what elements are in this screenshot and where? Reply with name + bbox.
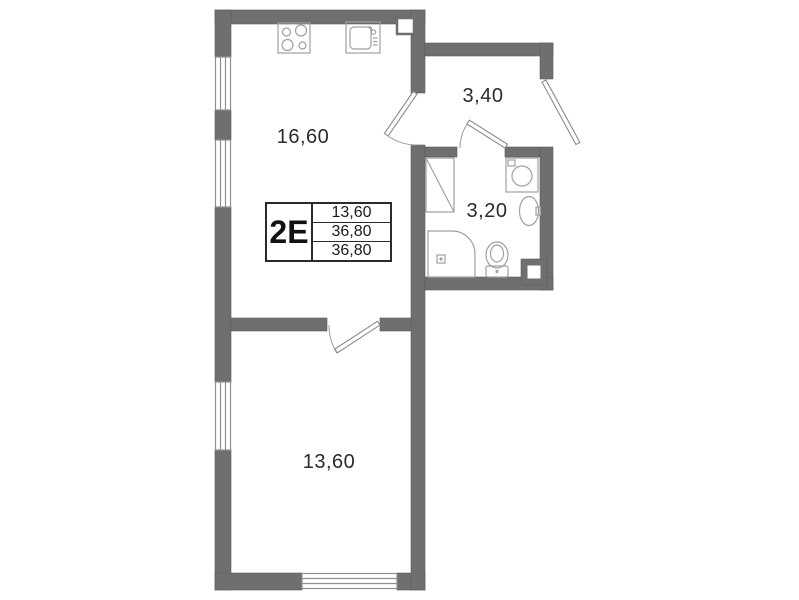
wall-divider-right — [380, 318, 411, 331]
bathroom-door-leaf — [467, 120, 507, 148]
floor-plan: 16,60 3,40 3,20 13,60 2E 13,60 36,80 36,… — [0, 0, 799, 600]
wall-bathroom-top-left — [425, 147, 457, 157]
wall-niche — [397, 18, 414, 34]
toilet-icon — [486, 242, 508, 277]
vent-shaft-icon — [521, 259, 547, 285]
unit-area-row-3: 36,80 — [313, 241, 390, 260]
window-bedroom-bottom — [302, 574, 397, 589]
wall-left-seg2 — [215, 110, 231, 140]
kitchen-door-swing-arc — [388, 136, 417, 145]
wall-left-seg3 — [215, 207, 231, 382]
unit-info-table: 2E 13,60 36,80 36,80 — [265, 202, 392, 262]
wall-hallway-right — [540, 43, 553, 79]
window-bedroom-left — [216, 382, 231, 450]
unit-info-rows: 13,60 36,80 36,80 — [313, 204, 390, 260]
water-heater-icon — [426, 158, 454, 212]
wall-divider-left — [231, 318, 327, 331]
bedroom-area-label: 13,60 — [303, 451, 356, 474]
bedroom-door-leaf — [335, 321, 380, 353]
floor-plan-drawing — [0, 0, 799, 600]
unit-area-row-2: 36,80 — [313, 222, 390, 241]
kitchen-living-area-label: 16,60 — [277, 126, 330, 149]
wall-right-main — [411, 145, 425, 590]
corner-shower-icon — [428, 231, 475, 277]
wall-bottom-seg1 — [215, 573, 302, 590]
hallway-area-label: 3,40 — [463, 85, 504, 108]
window-kitchen-lower — [216, 140, 231, 207]
bathroom-area-label: 3,20 — [467, 200, 508, 223]
wall-bathroom-top-right — [505, 147, 540, 157]
unit-area-row-1: 13,60 — [313, 204, 390, 222]
window-kitchen-upper — [216, 57, 231, 110]
wall-hallway-top — [425, 43, 553, 56]
wall-top — [215, 10, 425, 24]
bathroom-sink-icon — [520, 197, 541, 226]
kitchen-fixtures — [278, 22, 380, 53]
wall-left-seg4 — [215, 450, 231, 590]
entrance-door-leaf — [542, 80, 580, 145]
stove-icon — [278, 23, 310, 53]
kitchen-door-leaf — [384, 91, 417, 136]
bathroom-door-swing-arc — [460, 124, 467, 148]
wall-left-seg1 — [215, 10, 231, 57]
kitchen-sink-icon — [346, 22, 380, 53]
unit-type-label: 2E — [267, 204, 313, 260]
washing-machine-icon — [506, 158, 538, 192]
